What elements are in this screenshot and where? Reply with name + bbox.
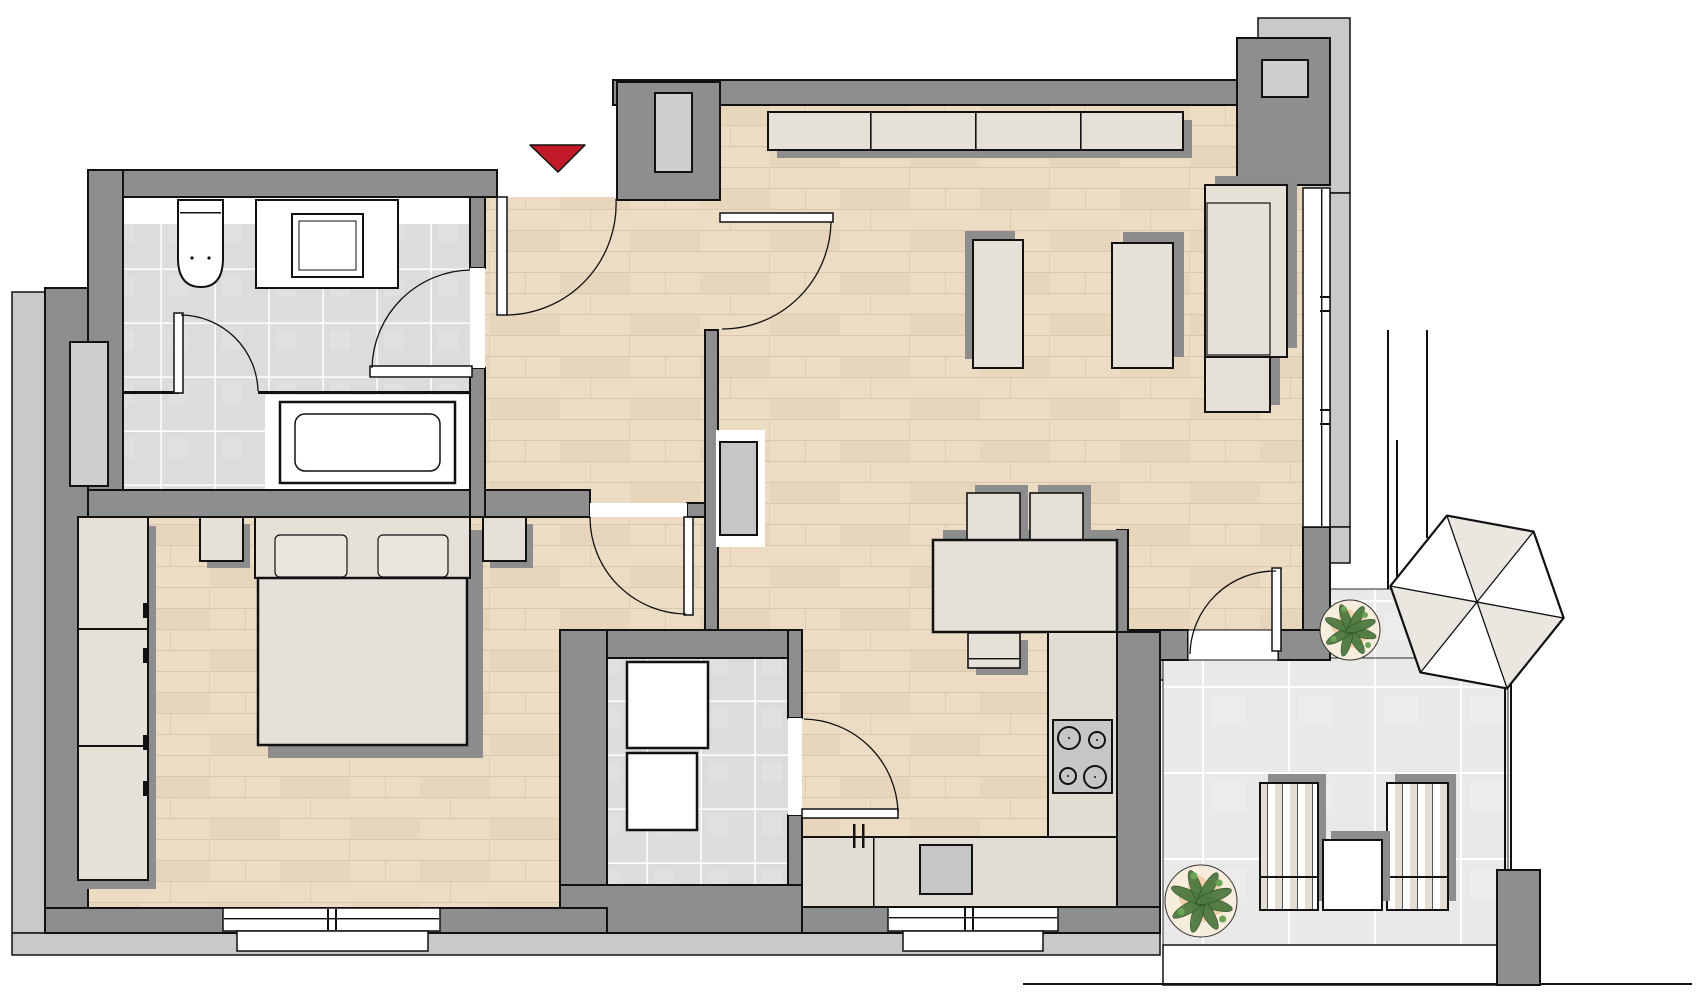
wall-bath-east-lower bbox=[470, 368, 485, 517]
burner-dot-2 bbox=[1096, 739, 1098, 741]
door-leaf-bedroom bbox=[684, 517, 693, 615]
lounger-1 bbox=[1260, 783, 1318, 910]
door-gap-utility bbox=[788, 718, 802, 815]
wall-utility-east-lower bbox=[788, 815, 802, 885]
exterior-ledge-east-low bbox=[1330, 527, 1350, 563]
bed-mattress bbox=[258, 578, 467, 745]
window-kitchen-tick-2 bbox=[972, 908, 974, 930]
dryer bbox=[627, 753, 697, 830]
lounger-2 bbox=[1387, 783, 1448, 910]
neighbour-partition-line-1 bbox=[1387, 330, 1389, 589]
dining-chair-3 bbox=[968, 633, 1020, 668]
plant-upper bbox=[1320, 600, 1380, 660]
window-bedroom bbox=[223, 908, 440, 931]
door-leaf-bathroom bbox=[370, 366, 472, 377]
coffee-table bbox=[1112, 243, 1173, 368]
wardrobe-handle-3 bbox=[143, 735, 148, 750]
window-bedroom-tick-1 bbox=[327, 909, 329, 930]
wall-utility-east-upper bbox=[788, 630, 802, 718]
kitchen-sink bbox=[920, 845, 972, 894]
door-leaf-bath-inner bbox=[174, 313, 183, 393]
wardrobe-divider-2 bbox=[79, 745, 147, 747]
sideboard-divider-3 bbox=[1080, 113, 1082, 149]
wall-bath-east-upper bbox=[470, 197, 485, 268]
window-east-frame-line bbox=[1321, 189, 1322, 526]
burner-dot-4 bbox=[1094, 776, 1096, 778]
window-bedroom-sill bbox=[237, 931, 428, 951]
wardrobe-handle-2 bbox=[143, 648, 148, 663]
neighbour-partition-line-3 bbox=[1426, 330, 1428, 538]
radiator bbox=[720, 442, 757, 535]
nightstand-left bbox=[200, 517, 243, 561]
window-east-tick-1 bbox=[1320, 296, 1330, 298]
kitchen-opening-tick-2 bbox=[862, 824, 865, 848]
floor-plan-page bbox=[0, 0, 1698, 1008]
exterior-ledge-west bbox=[12, 292, 45, 933]
dining-table bbox=[933, 540, 1117, 632]
plant-lower-bud-0 bbox=[1178, 908, 1185, 915]
window-kitchen-sill bbox=[903, 931, 1043, 951]
window-sill-east bbox=[1330, 193, 1350, 527]
lounger-1-line bbox=[1260, 876, 1318, 878]
plant-lower-bud-2 bbox=[1219, 915, 1226, 922]
door-leaf-utility bbox=[802, 809, 898, 818]
lounger-2-line bbox=[1387, 876, 1448, 878]
burner-dot-3 bbox=[1067, 775, 1069, 777]
wardrobe-divider-1 bbox=[79, 628, 147, 630]
site-boundary-line bbox=[1023, 983, 1692, 985]
plant-lower bbox=[1165, 865, 1237, 937]
door-gap-terrace bbox=[1188, 630, 1278, 660]
wall-bath-bedroom bbox=[88, 490, 590, 517]
kitchen-counter-seam bbox=[873, 838, 875, 906]
pillow-left bbox=[275, 535, 347, 577]
neighbour-partition-line-2 bbox=[1396, 440, 1398, 589]
nightstand-right bbox=[483, 517, 526, 561]
sideboard-divider-1 bbox=[870, 113, 872, 149]
window-east-tick-4 bbox=[1320, 423, 1330, 425]
floor-plan-canvas bbox=[0, 0, 1698, 1008]
door-gap-bedroom bbox=[590, 503, 687, 517]
door-leaf-entry bbox=[497, 197, 507, 315]
window-east-tick-2 bbox=[1320, 310, 1330, 312]
sofa-back bbox=[1205, 185, 1287, 357]
sideboard-divider-2 bbox=[975, 113, 977, 149]
window-east-tick-3 bbox=[1320, 409, 1330, 411]
plant-lower-bud-3 bbox=[1190, 872, 1197, 879]
wardrobe-handle-1 bbox=[143, 603, 148, 618]
window-kitchen-tick-1 bbox=[964, 908, 966, 930]
window-bedroom-frame-line bbox=[224, 918, 439, 919]
parasol-pole bbox=[1475, 600, 1478, 603]
wall-top-west bbox=[88, 170, 497, 197]
toilet-dot-1 bbox=[190, 256, 193, 259]
toilet-tank-line bbox=[180, 212, 221, 214]
plant-upper-bud-0 bbox=[1331, 636, 1337, 642]
window-east bbox=[1303, 188, 1330, 527]
terrace-table bbox=[1323, 840, 1382, 910]
duct-entry-pillar bbox=[655, 93, 692, 172]
toilet-dot-2 bbox=[207, 256, 210, 259]
plant-upper-bud-2 bbox=[1365, 642, 1371, 648]
wall-utility-west bbox=[560, 630, 607, 908]
pillow-right bbox=[378, 535, 448, 577]
parasol bbox=[1390, 516, 1563, 689]
door-leaf-terrace bbox=[1272, 568, 1281, 651]
terrace-outer-band bbox=[1163, 945, 1540, 985]
dining-chair-1 bbox=[967, 493, 1020, 540]
kitchen-opening-tick-1 bbox=[853, 824, 856, 848]
door-leaf-living bbox=[720, 213, 833, 222]
wardrobe-handle-4 bbox=[143, 781, 148, 796]
entrance-arrow bbox=[530, 145, 585, 172]
burner-dot-1 bbox=[1068, 737, 1070, 739]
door-gap-bathroom bbox=[470, 268, 485, 368]
shaft-west bbox=[70, 342, 108, 486]
sofa-seat bbox=[1205, 357, 1270, 412]
washing-machine bbox=[627, 662, 708, 748]
cabinet bbox=[973, 240, 1023, 368]
plant-upper-bud-3 bbox=[1341, 606, 1347, 612]
window-bedroom-tick-2 bbox=[335, 909, 337, 930]
wall-kitchen-east bbox=[1117, 632, 1160, 933]
dining-chair-2 bbox=[1030, 493, 1083, 540]
terrace-pillar bbox=[1497, 870, 1540, 985]
bathroom-partition-right bbox=[258, 391, 470, 394]
plant-lower-bud-1 bbox=[1215, 879, 1222, 886]
plant-upper-bud-1 bbox=[1362, 612, 1368, 618]
duct-top-right bbox=[1262, 60, 1308, 97]
wardrobe bbox=[78, 517, 148, 880]
dining-chair-3-line bbox=[969, 658, 1019, 659]
bathroom-partition-left bbox=[123, 391, 179, 394]
